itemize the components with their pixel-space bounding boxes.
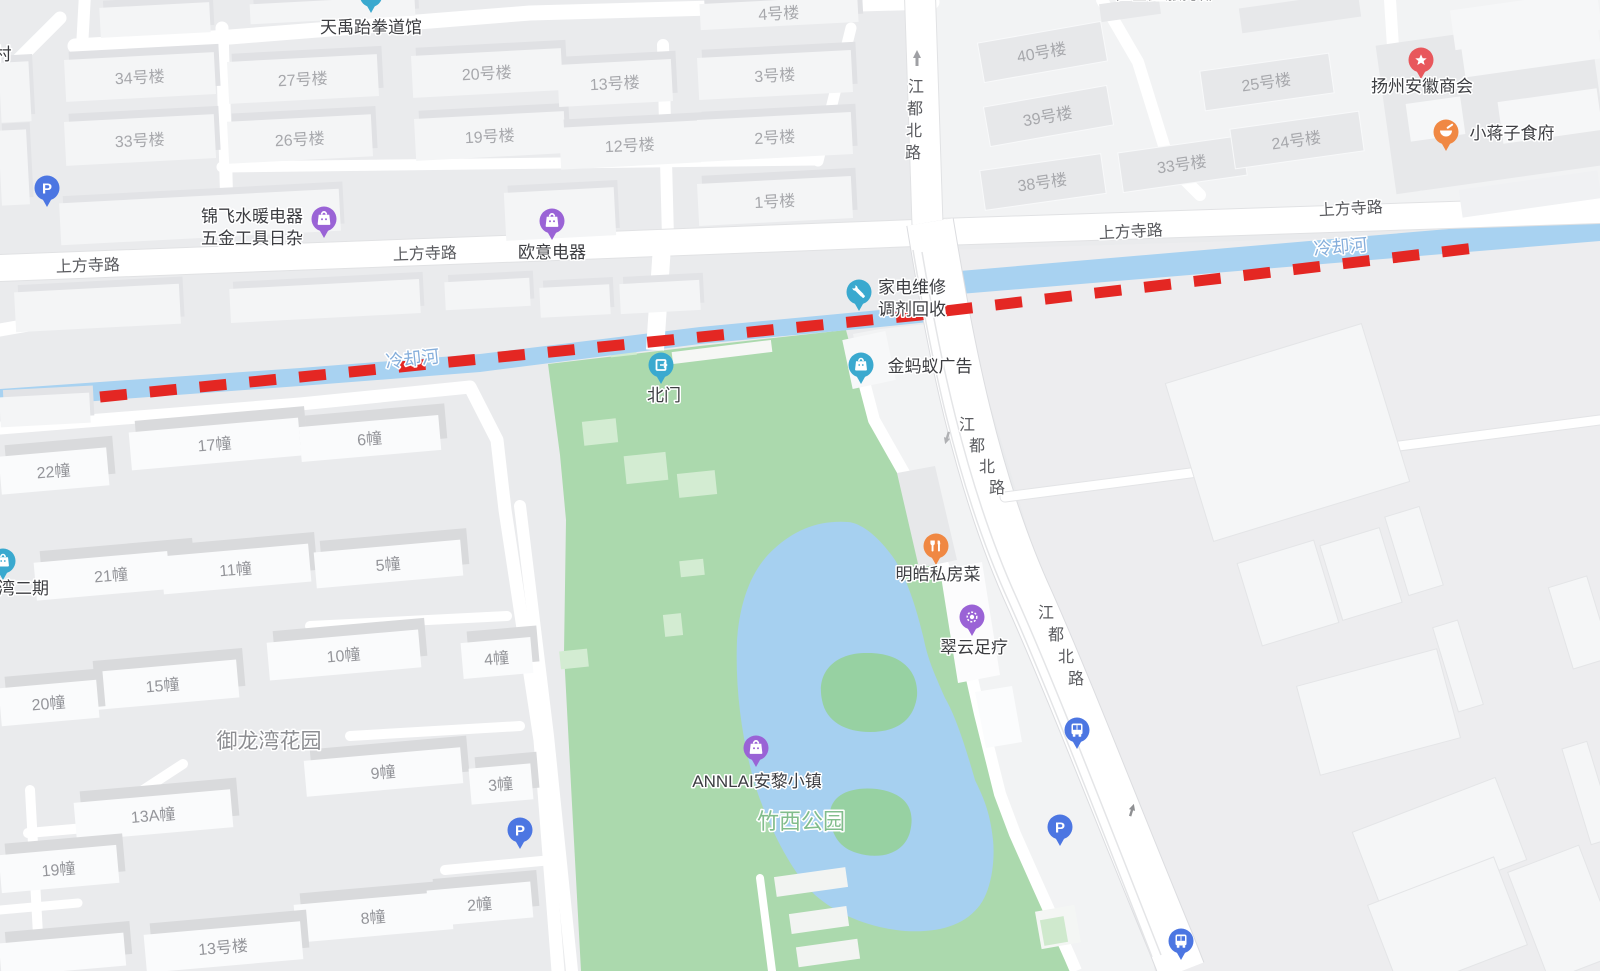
svg-text:33号楼: 33号楼 — [114, 131, 165, 152]
svg-text:15幢: 15幢 — [145, 676, 180, 697]
svg-text:P: P — [42, 181, 52, 198]
svg-text:都: 都 — [969, 437, 985, 455]
svg-text:明皓私房菜: 明皓私房菜 — [896, 565, 981, 584]
svg-text:10幢: 10幢 — [326, 646, 361, 667]
svg-text:ANNLAI安黎小镇: ANNLAI安黎小镇 — [692, 772, 821, 791]
svg-text:22幢: 22幢 — [36, 462, 71, 483]
svg-text:19幢: 19幢 — [41, 860, 76, 881]
svg-text:19号楼: 19号楼 — [464, 127, 515, 148]
svg-text:4号楼: 4号楼 — [758, 4, 800, 24]
svg-text:路: 路 — [1068, 670, 1084, 688]
svg-text:江: 江 — [908, 78, 924, 96]
svg-text:江: 江 — [1038, 604, 1054, 622]
svg-text:江: 江 — [959, 416, 975, 434]
svg-text:8幢: 8幢 — [360, 908, 386, 928]
svg-text:5幢: 5幢 — [375, 555, 401, 575]
svg-text:五金工具日杂: 五金工具日杂 — [201, 229, 303, 248]
svg-text:湾二期: 湾二期 — [0, 579, 49, 598]
svg-text:天禹跆拳道馆: 天禹跆拳道馆 — [320, 18, 422, 37]
svg-text:17幢: 17幢 — [197, 435, 232, 456]
svg-text:路: 路 — [905, 144, 921, 162]
svg-text:2号楼: 2号楼 — [754, 128, 796, 148]
svg-text:12号楼: 12号楼 — [604, 136, 655, 157]
svg-text:村: 村 — [0, 45, 12, 64]
svg-text:北: 北 — [1058, 648, 1074, 666]
svg-text:路: 路 — [989, 479, 1005, 497]
svg-text:上方寺路: 上方寺路 — [1098, 221, 1163, 242]
svg-text:竹西公园: 竹西公园 — [757, 809, 845, 834]
svg-text:34号楼: 34号楼 — [114, 68, 165, 89]
svg-text:27号楼: 27号楼 — [277, 70, 328, 91]
svg-text:扬州安徽商会: 扬州安徽商会 — [1371, 77, 1473, 96]
svg-text:翠云足疗: 翠云足疗 — [940, 638, 1008, 657]
svg-text:11幢: 11幢 — [219, 560, 253, 581]
svg-text:北: 北 — [906, 122, 922, 140]
svg-text:锦飞水暖电器: 锦飞水暖电器 — [201, 207, 303, 226]
svg-text:20幢: 20幢 — [31, 694, 66, 715]
svg-text:2幢: 2幢 — [466, 895, 492, 915]
svg-text:3号楼: 3号楼 — [754, 66, 796, 86]
svg-text:小蒋子食府: 小蒋子食府 — [1470, 124, 1555, 143]
svg-text:恒基鑫服务部: 恒基鑫服务部 — [1114, 0, 1216, 3]
svg-text:都: 都 — [907, 100, 923, 118]
svg-text:13号楼: 13号楼 — [589, 74, 640, 95]
svg-text:上方寺路: 上方寺路 — [1318, 198, 1383, 219]
svg-text:9幢: 9幢 — [370, 763, 396, 783]
svg-text:上方寺路: 上方寺路 — [56, 256, 121, 276]
svg-text:御龙湾花园: 御龙湾花园 — [217, 730, 322, 753]
svg-text:家电维修: 家电维修 — [878, 278, 946, 297]
svg-text:P: P — [515, 823, 525, 840]
svg-text:P: P — [1055, 820, 1065, 837]
svg-text:21幢: 21幢 — [93, 566, 128, 587]
svg-text:3幢: 3幢 — [487, 775, 513, 795]
svg-text:1号楼: 1号楼 — [754, 192, 796, 212]
svg-text:都: 都 — [1048, 626, 1064, 644]
svg-text:北门: 北门 — [647, 386, 681, 405]
svg-text:4幢: 4幢 — [483, 649, 509, 669]
svg-text:20号楼: 20号楼 — [461, 64, 512, 85]
svg-text:26号楼: 26号楼 — [274, 130, 325, 151]
svg-text:调剂回收: 调剂回收 — [878, 300, 946, 319]
svg-text:北: 北 — [979, 458, 995, 476]
svg-text:金蚂蚁广告: 金蚂蚁广告 — [888, 357, 973, 376]
svg-text:上方寺路: 上方寺路 — [393, 244, 458, 264]
svg-text:欧意电器: 欧意电器 — [518, 243, 586, 262]
svg-text:6幢: 6幢 — [356, 429, 382, 449]
